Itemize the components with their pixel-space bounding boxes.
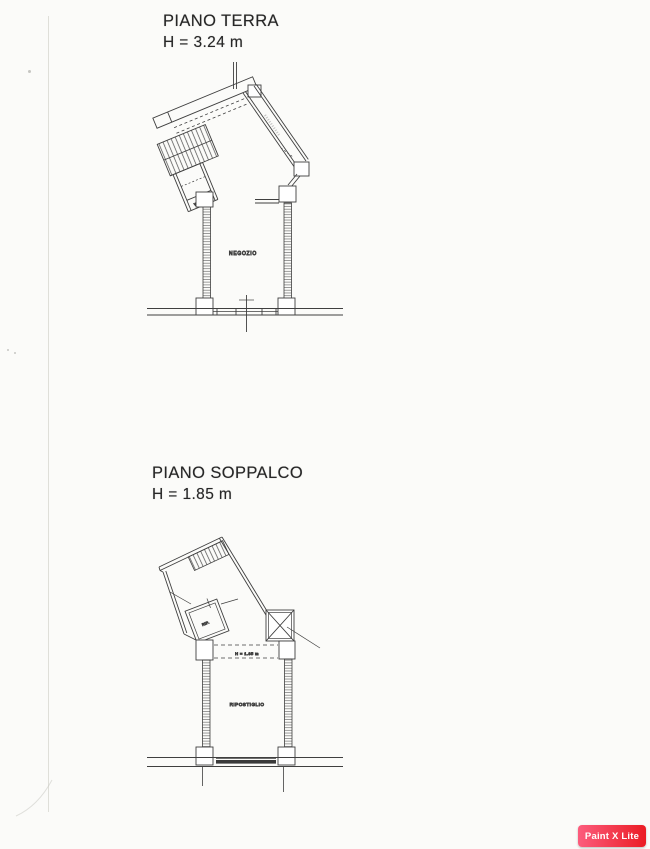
stair-block: W.C. <box>147 77 291 213</box>
height-dashed-line: H = 1.85 m <box>196 640 295 660</box>
height-line-label: H = 1.85 m <box>235 651 259 656</box>
mezzanine-walls <box>196 659 295 765</box>
piano-terra-title-block: PIANO TERRA H = 3.24 m <box>163 11 279 53</box>
scanned-page: { "page": { "background": "#fbfbf9", "in… <box>0 0 650 849</box>
mezzanine-room-label: RIPOSTIGLIO <box>230 702 265 707</box>
piano-terra-drawing: W.C. <box>140 55 360 350</box>
piano-soppalco-title: PIANO SOPPALCO <box>152 463 303 484</box>
storage-room-label: RIP. <box>201 620 210 627</box>
piano-soppalco-drawing: RIP. H = 1.85 m <box>140 530 360 800</box>
illegible-dimension-text <box>265 115 279 135</box>
piano-soppalco-title-block: PIANO SOPPALCO H = 1.85 m <box>152 463 303 505</box>
scan-edge-line <box>48 16 49 812</box>
scan-speck <box>14 352 16 354</box>
piano-terra-title: PIANO TERRA <box>163 11 279 32</box>
scan-speck <box>28 70 31 73</box>
street-lines <box>147 309 343 316</box>
watermark-badge[interactable]: Paint X Lite <box>578 825 646 847</box>
piano-terra-height: H = 3.24 m <box>163 32 279 53</box>
diagonal-corridor <box>234 62 310 187</box>
street-lines <box>147 758 343 793</box>
page-corner-curl <box>8 768 68 820</box>
shop-room-label: NEGOZIO <box>229 251 257 257</box>
center-axis-marker <box>239 295 254 332</box>
stair-hatch <box>188 541 229 571</box>
scan-speck <box>7 349 9 351</box>
storage-room: RIP. <box>184 595 229 643</box>
watermark-label: Paint X Lite <box>585 831 639 842</box>
piano-soppalco-height: H = 1.85 m <box>152 484 303 505</box>
